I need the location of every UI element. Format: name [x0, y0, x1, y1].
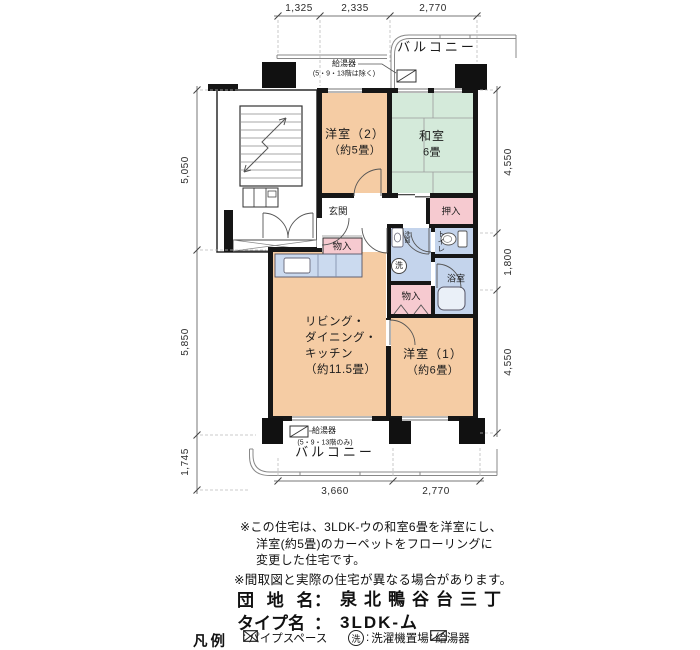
legend-item-pipe-space: : パイプスペース — [243, 630, 327, 646]
ldk-line-3: キッチン — [305, 346, 377, 362]
room-label-bath: 浴室 — [447, 275, 465, 284]
water-heater-note-top: (5・9・13階は除く) — [313, 71, 375, 78]
pipe-space-icon — [243, 630, 258, 642]
estate-name-label: 団 地 名 — [237, 586, 313, 611]
water-heater-note-bottom: (5・9・13階のみ) — [297, 440, 352, 447]
water-heater-label-bottom: 給湯器 — [312, 427, 336, 435]
ldk-line-4: （約11.5畳） — [305, 362, 377, 378]
note-line-2: 洋室(約5畳)のカーペットをフローリングに — [256, 535, 493, 552]
dim-left-2: 5,850 — [181, 328, 191, 356]
dim-right-1: 4,550 — [504, 148, 514, 176]
estate-name-value: 泉北鴨谷台三丁 — [340, 585, 508, 610]
ldk-line-2: ダイニング・ — [305, 330, 377, 346]
room-label-washroom: 洗面 — [403, 231, 409, 243]
dim-bottom-1: 3,660 — [321, 487, 349, 497]
room-label-laundry: 洗 — [395, 262, 403, 270]
room-label-oshiire: 押入 — [441, 207, 460, 217]
dim-top-2: 2,335 — [341, 4, 369, 14]
kitchen-sink — [284, 258, 310, 273]
balcony-label-bottom: バルコニー — [295, 446, 375, 459]
room-label-storage-hall: 物入 — [332, 242, 351, 252]
room-size-japanese: 6畳 — [423, 148, 441, 159]
room-size-western2: （約5畳） — [329, 146, 382, 157]
note-line-1: ※この住宅は、3LDK-ウの和室6畳を洋室にし、 — [240, 518, 502, 535]
legend-item-washer: 洗 : 洗濯機置場 — [348, 630, 429, 646]
ldk-line-1: リビング・ — [305, 314, 377, 330]
water-heater-label-top: 給湯器 — [332, 60, 356, 68]
legend-label-pipe-space: パイプスペース — [248, 630, 327, 646]
room-japanese — [392, 93, 473, 193]
room-western2 — [322, 93, 387, 193]
dim-bottom-2: 2,770 — [422, 487, 450, 497]
dim-top-3: 2,770 — [419, 4, 447, 14]
room-label-japanese: 和室 — [419, 130, 445, 142]
room-label-storage-mid: 物入 — [401, 292, 420, 302]
water-heater-icon — [430, 630, 447, 641]
note-line-3: 変更した住宅です。 — [256, 551, 366, 568]
estate-name-colon: ： — [314, 586, 331, 611]
dim-left-1: 5,050 — [181, 156, 191, 184]
room-label-toilet: トイレ — [437, 230, 445, 253]
room-label-western1: 洋室（1） — [403, 348, 463, 360]
floor-plan-page: 1,325 2,335 2,770 5,050 5,850 1,745 4,55… — [0, 0, 700, 650]
washbasin — [392, 228, 403, 247]
room-label-western2: 洋室（2） — [325, 128, 385, 140]
toilet-tank — [458, 231, 467, 247]
room-label-entrance: 玄関 — [328, 207, 347, 217]
legend-colon: : — [366, 632, 369, 644]
balcony-label-top: バルコニー — [397, 41, 477, 54]
dim-right-2: 1,800 — [504, 248, 514, 276]
legend-item-water-heater: : 給湯器 — [430, 630, 470, 646]
legend-label-washer: 洗濯機置場 — [371, 630, 429, 646]
dim-top-1: 1,325 — [285, 4, 313, 14]
room-label-ldk: リビング・ ダイニング・ キッチン （約11.5畳） — [305, 314, 377, 378]
dim-left-3: 1,745 — [181, 448, 191, 476]
legend-title: 凡例 — [193, 630, 228, 650]
dim-right-3: 4,550 — [504, 348, 514, 376]
bathtub — [438, 287, 465, 310]
washer-icon: 洗 — [348, 630, 364, 646]
room-size-western1: （約6畳） — [407, 366, 460, 377]
